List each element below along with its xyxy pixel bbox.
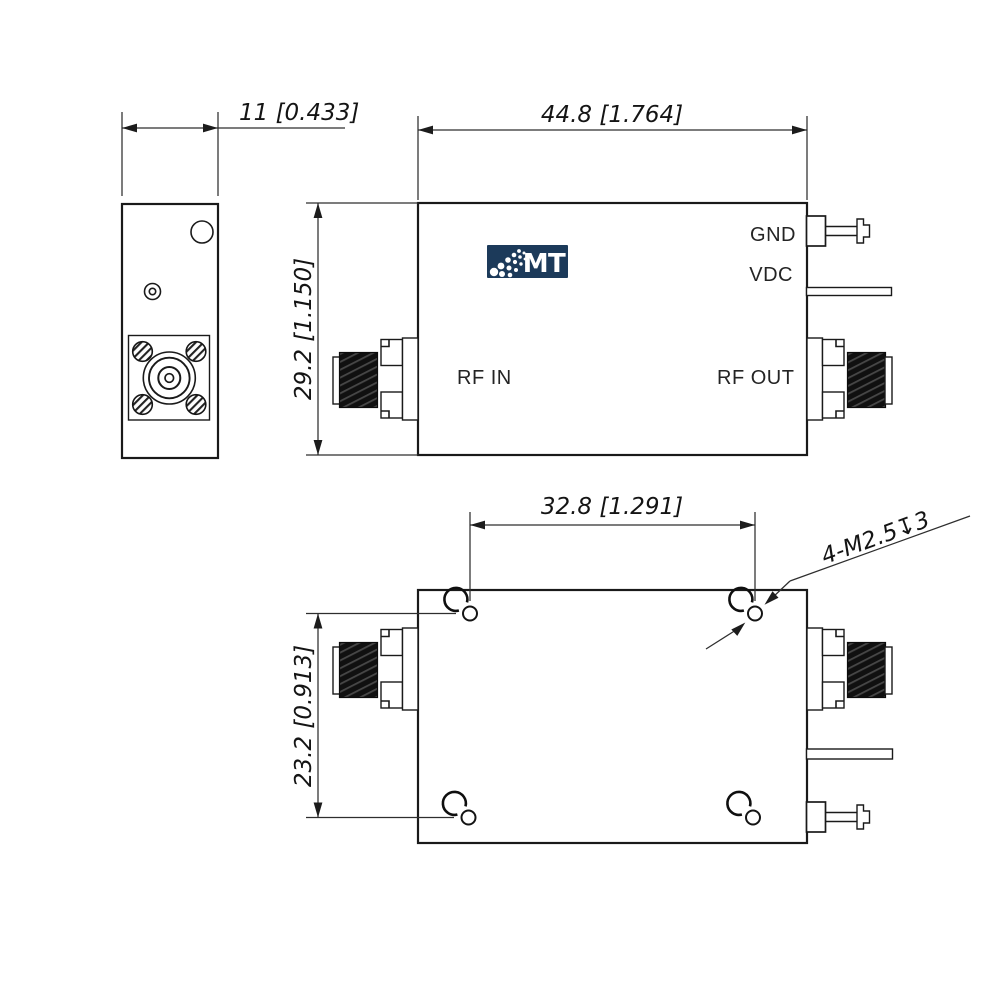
rf-out-label: RF OUT (717, 367, 794, 389)
front-view: MT GND VDC RF IN RF OUT (333, 203, 892, 455)
bottom-view-body (418, 590, 807, 843)
front-view-body (418, 203, 807, 455)
flange-screw (133, 342, 153, 362)
dimension-text-holes-callout: 4-M2.5↧3 (818, 507, 933, 570)
thread-section (848, 353, 886, 408)
thread-section (340, 643, 378, 698)
side-view (122, 204, 218, 458)
drawing-page: 11 [0.433] MT GND VDC RF IN RF OUT (0, 0, 1000, 1000)
gnd-label: GND (750, 224, 796, 246)
rf-in-connector (333, 338, 418, 420)
dimension-text-hole-spacing-x: 32.8 [1.291] (541, 494, 683, 520)
bottom-view (333, 588, 893, 843)
flange-screw (186, 342, 206, 362)
rf-out-connector (807, 338, 892, 420)
dimension-text-body-width: 44.8 [1.764] (541, 102, 683, 128)
brand-logo: MT (487, 245, 568, 279)
flange-screw (133, 395, 153, 415)
gnd-terminal-bottom (807, 802, 870, 832)
thread-section (848, 643, 886, 698)
technical-drawing: 11 [0.433] MT GND VDC RF IN RF OUT (0, 0, 1000, 1000)
rf-in-connector-bottom (333, 628, 418, 710)
dimension-text-hole-spacing-y: 23.2 [0.913] (291, 645, 317, 787)
gnd-terminal (807, 216, 870, 246)
dimension-hole-spacing-x: 32.8 [1.291] (470, 494, 755, 601)
dimension-side-width: 11 [0.433] (122, 100, 359, 196)
rf-out-connector-bottom (807, 628, 892, 710)
flange-screw (186, 395, 206, 415)
coax-flange-connector (129, 336, 210, 421)
vdc-label: VDC (749, 264, 793, 286)
logo-text: MT (523, 249, 566, 279)
thread-section (340, 353, 378, 408)
rf-in-label: RF IN (457, 367, 512, 389)
dimension-text-body-height: 29.2 [1.150] (291, 258, 317, 400)
vdc-pin-bottom (807, 749, 893, 759)
dimension-text-side-width: 11 [0.433] (239, 100, 359, 126)
dimension-body-width: 44.8 [1.764] (418, 102, 807, 200)
vdc-pin (807, 288, 892, 296)
